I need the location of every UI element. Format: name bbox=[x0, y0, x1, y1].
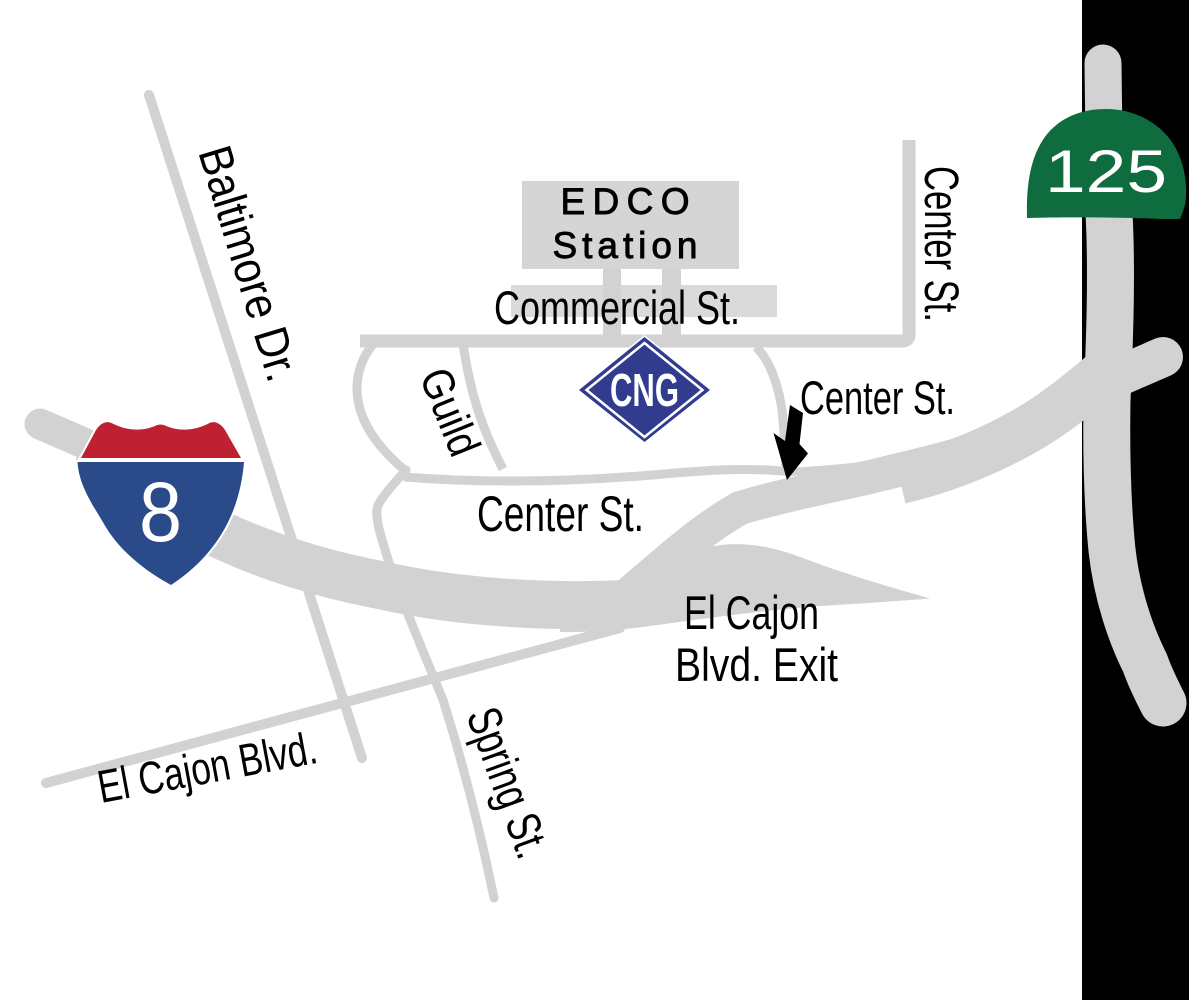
svg-text:Commercial St.: Commercial St. bbox=[494, 281, 740, 334]
svg-text:Center St.: Center St. bbox=[800, 371, 955, 424]
svg-text:CNG: CNG bbox=[610, 364, 679, 416]
svg-text:Blvd. Exit: Blvd. Exit bbox=[675, 638, 838, 691]
svg-text:125: 125 bbox=[1045, 138, 1167, 205]
svg-text:Center St.: Center St. bbox=[914, 166, 967, 322]
svg-text:Center St.: Center St. bbox=[477, 486, 644, 542]
svg-text:8: 8 bbox=[139, 465, 182, 559]
svg-text:El Cajon: El Cajon bbox=[684, 586, 819, 639]
